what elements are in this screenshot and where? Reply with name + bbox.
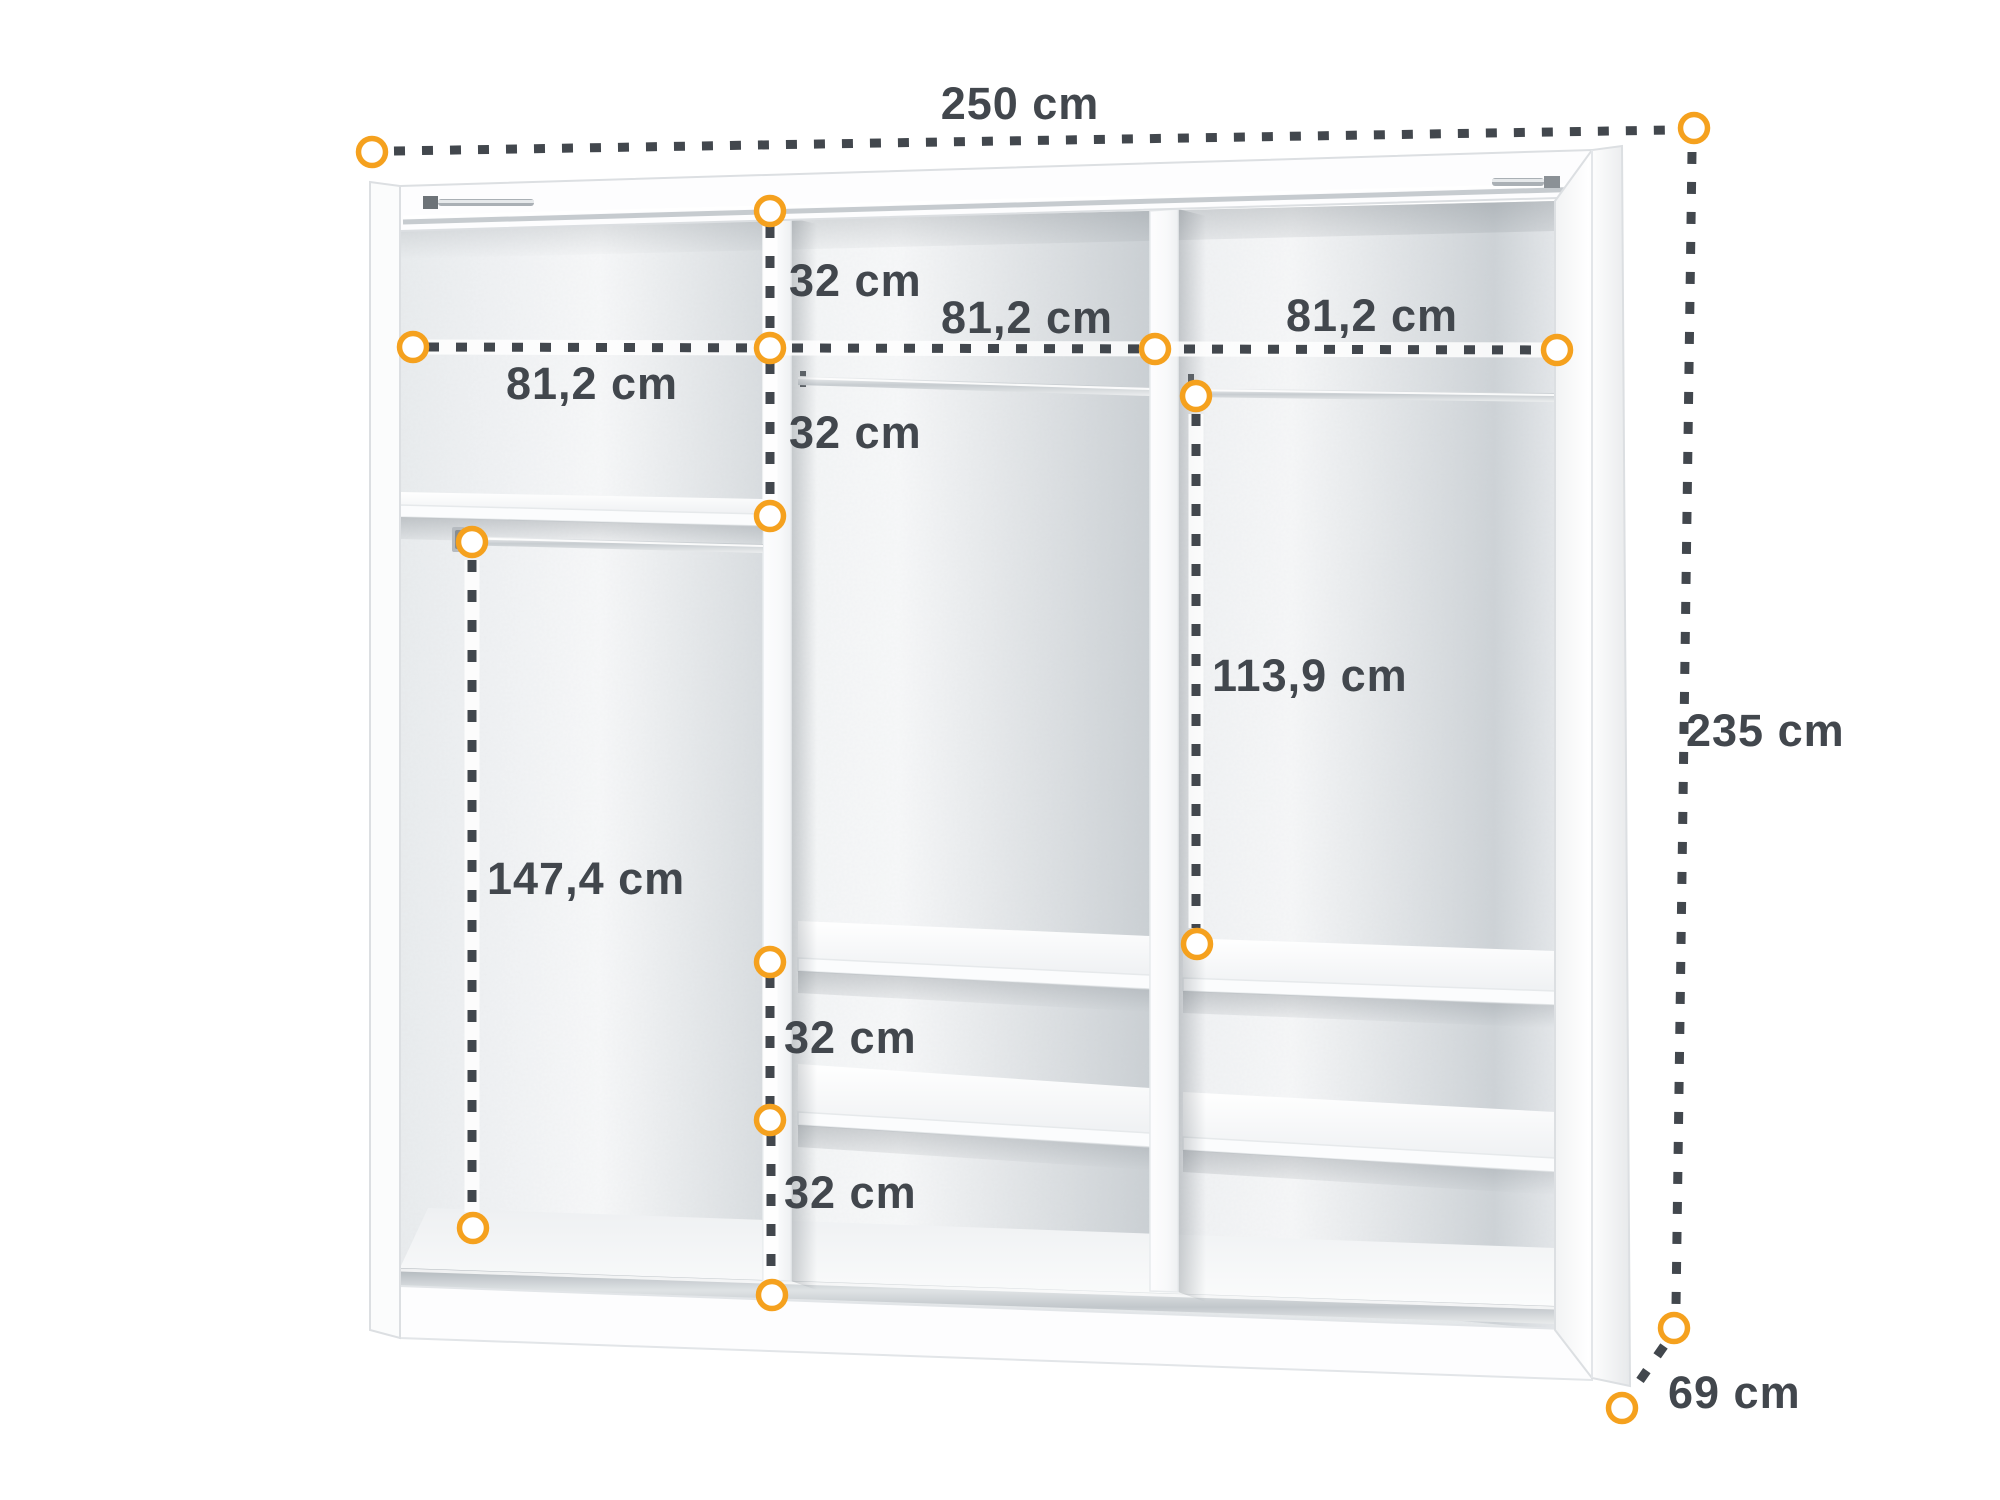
dimension-marker: [757, 949, 784, 976]
wardrobe-dimension-diagram: 250 cm 235 cm 69 cm 81,2 cm 81,2 cm 81,2…: [0, 0, 2000, 1500]
label-gap-line-to-shelf: 32 cm: [789, 407, 922, 458]
wardrobe-left-side-panel: [370, 182, 400, 1338]
label-section-width-middle: 81,2 cm: [941, 292, 1113, 343]
dimension-marker: [1681, 115, 1708, 142]
dimension-marker: [1609, 1395, 1636, 1422]
dimension-marker: [400, 334, 427, 361]
dimension-marker: [1661, 1315, 1688, 1342]
dimension-marker: [1184, 931, 1211, 958]
diagram-canvas: 250 cm 235 cm 69 cm 81,2 cm 81,2 cm 81,2…: [0, 0, 2000, 1500]
dimension-marker: [757, 335, 784, 362]
label-gap-top: 32 cm: [789, 255, 922, 306]
label-gap-shelf-lower: 32 cm: [784, 1167, 917, 1218]
dimension-marker: [1183, 383, 1210, 410]
dimension-marker: [460, 1215, 487, 1242]
dimension-line-total-height: 235 cm: [1661, 152, 1845, 1342]
dimension-line-total-depth: 69 cm: [1609, 1346, 1801, 1422]
dimension-marker: [757, 1107, 784, 1134]
label-gap-shelf-upper: 32 cm: [784, 1012, 917, 1063]
dimension-marker: [1142, 336, 1169, 363]
label-total-width: 250 cm: [941, 78, 1100, 129]
label-total-height: 235 cm: [1686, 705, 1845, 756]
dimension-marker: [757, 198, 784, 225]
label-hanging-space-right: 113,9 cm: [1212, 650, 1408, 701]
dimension-marker: [459, 529, 486, 556]
label-section-width-left: 81,2 cm: [506, 358, 678, 409]
dimension-marker: [759, 1282, 786, 1309]
dimension-marker: [359, 139, 386, 166]
label-section-width-right: 81,2 cm: [1286, 290, 1458, 341]
dimension-marker: [1544, 337, 1571, 364]
dimension-marker: [757, 503, 784, 530]
label-hanging-space-left: 147,4 cm: [487, 853, 685, 904]
label-total-depth: 69 cm: [1668, 1367, 1801, 1418]
